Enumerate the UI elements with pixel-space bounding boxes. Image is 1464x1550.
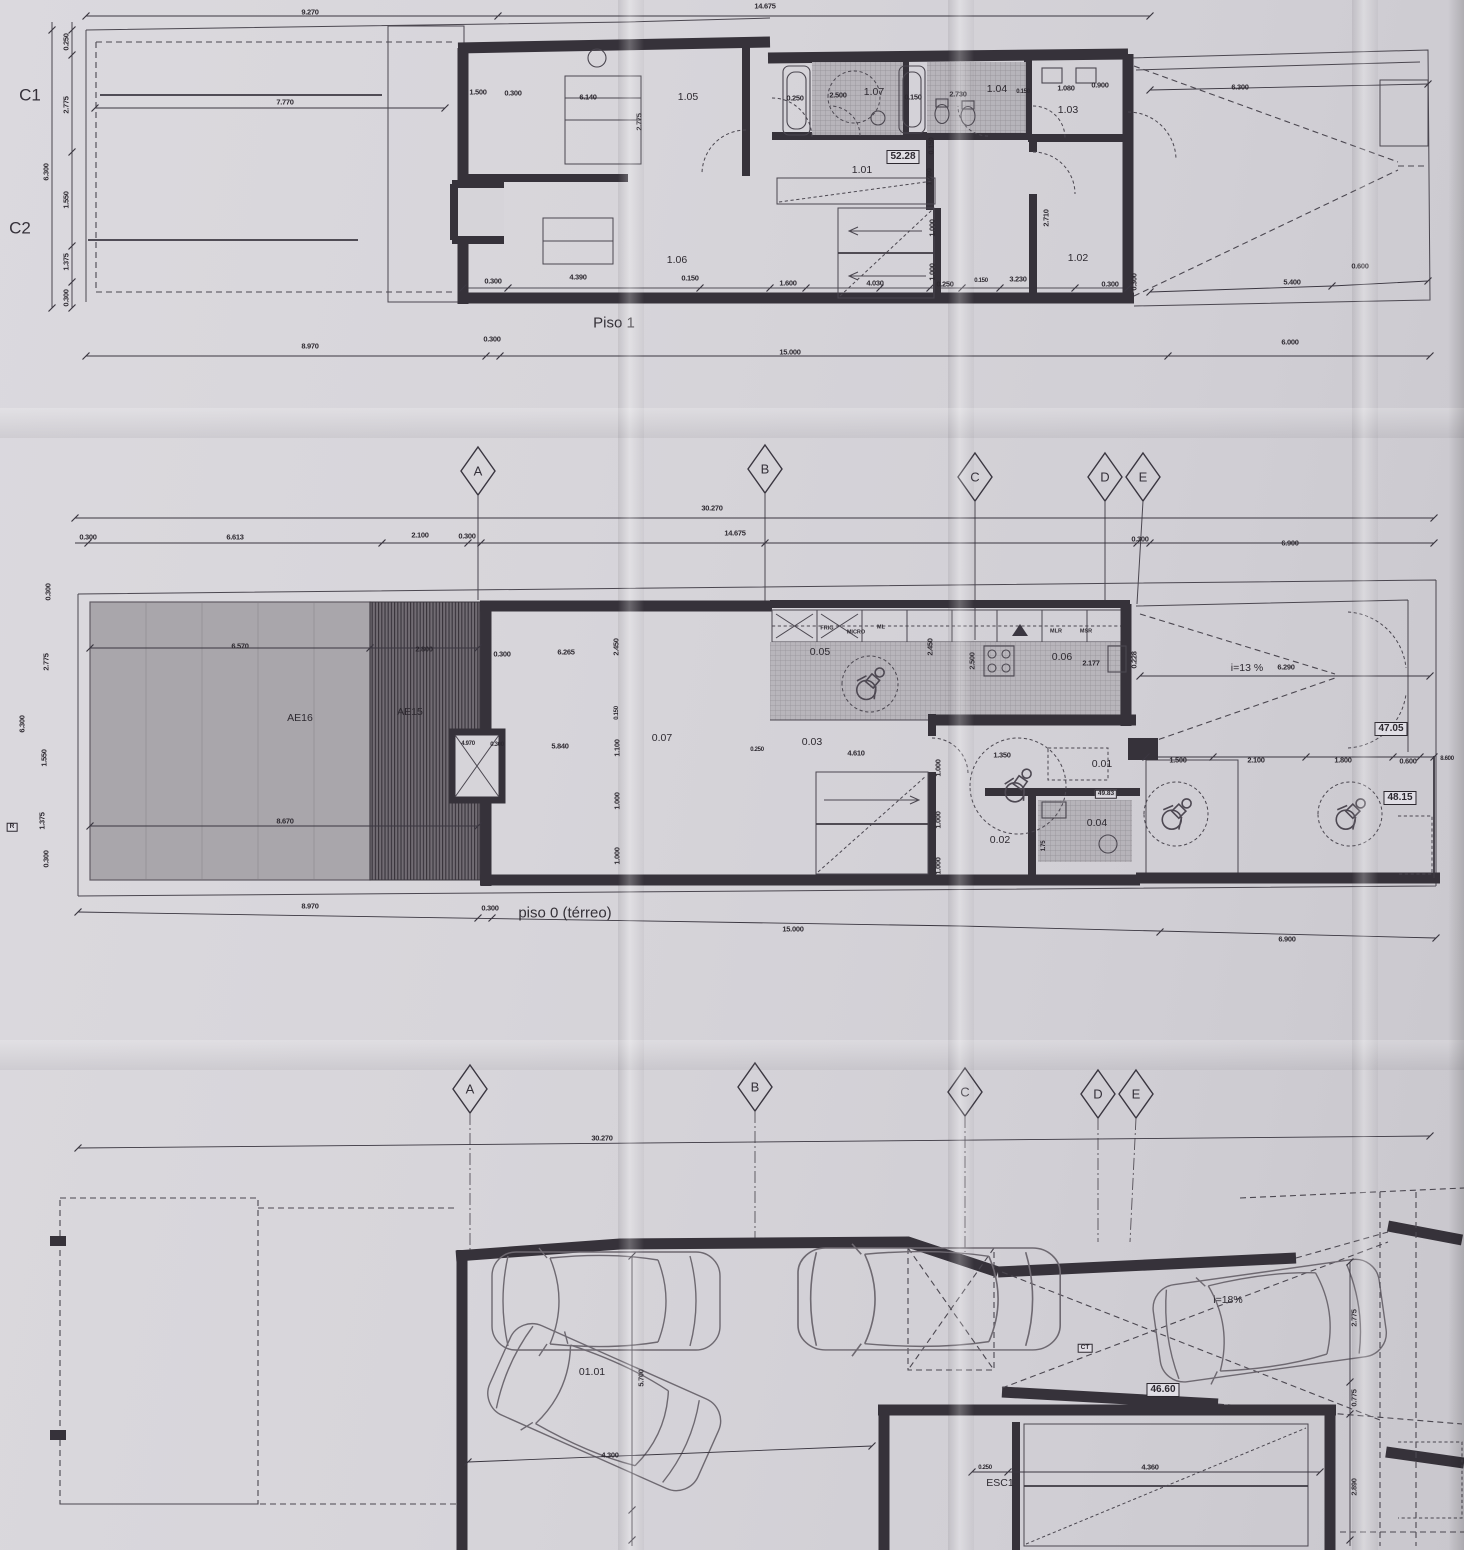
room-label-1.06: 1.06 <box>667 255 687 266</box>
dim-label: 0.300 <box>42 850 50 867</box>
dim-label: 0.900 <box>1091 81 1108 89</box>
dim-label: 6.290 <box>1277 663 1294 671</box>
dim-label: 1.000 <box>928 263 936 280</box>
dim-label: 1.000 <box>934 857 942 874</box>
dim-label: 7.770 <box>276 98 293 106</box>
dim-label: 0.300 <box>62 289 70 306</box>
dim-label: 0.300 <box>44 583 52 600</box>
dim-label: 14.675 <box>754 2 775 10</box>
dim-label: 1.780 <box>925 168 933 185</box>
dim-label: 5.400 <box>1283 278 1300 286</box>
grid-marker-B: B <box>751 1081 760 1094</box>
dim-label: 1.080 <box>1057 84 1074 92</box>
dim-label: 5.840 <box>551 742 568 750</box>
dim-label: 1.000 <box>934 811 942 828</box>
dim-label: 1.550 <box>62 191 70 208</box>
dim-label: 5.700 <box>637 1369 645 1386</box>
blueprint-sheet: 9.27014.675C1C27.7700.2502.7756.3001.550… <box>0 0 1464 1550</box>
room-label-0.02: 0.02 <box>990 835 1010 846</box>
tiny-label: 8.600 <box>1440 756 1454 762</box>
dim-label: 1.000 <box>613 847 621 864</box>
app-label: FRIG <box>820 626 833 632</box>
dim-label: 6.300 <box>18 715 26 732</box>
dim-label: 6.300 <box>42 163 50 180</box>
plan-title-piso1: Piso 1 <box>593 316 635 331</box>
dim-label: 30.270 <box>591 1134 612 1142</box>
room-label-1.01: 1.01 <box>852 165 872 176</box>
room-label-0.07: 0.07 <box>652 733 672 744</box>
room-label-1.05: 1.05 <box>678 92 698 103</box>
dim-label: 0.250 <box>936 280 953 288</box>
dim-label: 4.030 <box>866 279 883 287</box>
room-label-1.02: 1.02 <box>1068 253 1088 264</box>
box-label: 46.60 <box>1146 1383 1179 1397</box>
dim-label: 14.675 <box>724 529 745 537</box>
dim-label: 1.375 <box>62 253 70 270</box>
room-label-AE15: AE15 <box>397 707 423 718</box>
dim-label: 0.300 <box>79 533 96 541</box>
dim-label: 0.300 <box>1130 273 1138 290</box>
dim-label: 0.250 <box>786 94 803 102</box>
dim-label: 0.300 <box>1101 280 1118 288</box>
room-label-1.07: 1.07 <box>864 87 884 98</box>
dim-label: 4.610 <box>847 749 864 757</box>
dim-label: 6.613 <box>226 533 243 541</box>
room-label-AE16: AE16 <box>287 713 313 724</box>
tiny-label: 0.150 <box>614 706 620 720</box>
dim-label: 9.270 <box>301 8 318 16</box>
dim-label: 1.000 <box>934 759 942 776</box>
boxtiny-label: R <box>7 823 18 832</box>
dim-label: 0.228 <box>1130 651 1138 668</box>
section-label: C1 <box>19 87 41 104</box>
dim-label: 0.300 <box>481 904 498 912</box>
dim-label: 15.000 <box>782 925 803 933</box>
tiny-label: 0.150 <box>1016 89 1030 95</box>
app-label: MSR <box>1080 629 1092 635</box>
dim-label: 1.600 <box>779 279 796 287</box>
app-label: MICRO <box>847 630 865 636</box>
grid-marker-B: B <box>761 463 770 476</box>
room-label-1.03: 1.03 <box>1058 105 1078 116</box>
dim-label: 30.270 <box>701 504 722 512</box>
app-label: MLR <box>1050 629 1062 635</box>
dim-label: 2.710 <box>1042 209 1050 226</box>
dim-label: 0.300 <box>458 532 475 540</box>
dim-label: 6.570 <box>231 642 248 650</box>
room-label-01.01: 01.01 <box>579 1367 605 1378</box>
dim-label: 0.250 <box>62 33 70 50</box>
grid-marker-C: C <box>970 471 979 484</box>
grid-marker-C: C <box>960 1086 969 1099</box>
dim-label: 6.140 <box>579 93 596 101</box>
dim-label: 4.360 <box>1141 1463 1158 1471</box>
grid-marker-E: E <box>1132 1088 1141 1101</box>
dim-label: 2.450 <box>926 638 934 655</box>
tiny-label: 0.250 <box>750 747 764 753</box>
dim-label: 0.300 <box>483 335 500 343</box>
dim-label: 4.390 <box>569 273 586 281</box>
grid-marker-D: D <box>1100 471 1109 484</box>
dim-label: 0.150 <box>681 274 698 282</box>
dim-label: 0.600 <box>1399 757 1416 765</box>
dim-label: 15.000 <box>779 348 800 356</box>
dim-label: 1.000 <box>613 792 621 809</box>
dim-label: 1.500 <box>1169 756 1186 764</box>
box-label: 47.05 <box>1374 722 1407 736</box>
boxtiny-label: CT <box>1078 1344 1093 1353</box>
dim-label: 2.775 <box>42 653 50 670</box>
dim-label: 1.375 <box>38 812 46 829</box>
dim-label: 0.150 <box>904 93 921 101</box>
dim-label: 1.550 <box>40 749 48 766</box>
dim-label: 0.600 <box>1351 262 1368 270</box>
dim-label: 2.100 <box>1247 756 1264 764</box>
dim-label: 2.177 <box>1082 659 1099 667</box>
room-label-ESC1: ESC1 <box>986 1478 1013 1489</box>
dim-label: 2.890 <box>1350 1478 1358 1495</box>
box-label: 52.28 <box>886 150 919 164</box>
dim-label: 8.670 <box>276 817 293 825</box>
grid-marker-A: A <box>466 1083 475 1096</box>
dim-label: 4.300 <box>601 1451 618 1459</box>
tiny-label: 1.75 <box>1041 841 1047 851</box>
dim-label: 6.265 <box>557 648 574 656</box>
dim-label: 1.350 <box>993 751 1010 759</box>
dim-label: 0.775 <box>1350 1389 1358 1406</box>
boxtiny-label: 49.83 <box>1095 790 1117 799</box>
tiny-label: 0.300 <box>490 742 504 748</box>
room-label-0.04: 0.04 <box>1087 818 1107 829</box>
dim-label: 1.500 <box>469 88 486 96</box>
dim-label: 2.775 <box>635 113 643 130</box>
dim-label: 2.450 <box>612 638 620 655</box>
room-label-1.04: 1.04 <box>987 84 1007 95</box>
dim-label: 0.300 <box>1131 535 1148 543</box>
dim-label: 1.000 <box>928 219 936 236</box>
room-label-0.03: 0.03 <box>802 737 822 748</box>
dim-label: 3.230 <box>1009 275 1026 283</box>
dim-label: 6.000 <box>1281 338 1298 346</box>
box-label: 48.15 <box>1383 791 1416 805</box>
plan-title-piso0: piso 0 (térreo) <box>518 906 611 921</box>
dim-label: 8.970 <box>301 902 318 910</box>
grid-marker-A: A <box>474 465 483 478</box>
dim-label: 2.730 <box>949 90 966 98</box>
dim-label: 2.775 <box>62 96 70 113</box>
dim-label: 8.970 <box>301 342 318 350</box>
grid-marker-D: D <box>1093 1088 1102 1101</box>
label-layer: 9.27014.675C1C27.7700.2502.7756.3001.550… <box>0 0 1464 1550</box>
dim-label: 0.300 <box>493 650 510 658</box>
tiny-label: 0.150 <box>974 278 988 284</box>
section-label: C2 <box>9 220 31 237</box>
dim-label: 1.800 <box>1334 756 1351 764</box>
room-label-0.01: 0.01 <box>1092 759 1112 770</box>
dim-label: 6.300 <box>1231 83 1248 91</box>
dim-label: 2.500 <box>968 652 976 669</box>
dim-label: 0.150 <box>927 137 935 154</box>
dim-label: 2.775 <box>1350 1309 1358 1326</box>
app-label: ML <box>877 625 885 631</box>
dim-label: 6.900 <box>1278 935 1295 943</box>
dim-label: 0.300 <box>504 89 521 97</box>
room-label-i=13 %: i=13 % <box>1231 663 1263 674</box>
tiny-label: 4.970 <box>461 741 475 747</box>
dim-label: 1.100 <box>613 739 621 756</box>
dim-label: 2.500 <box>829 91 846 99</box>
room-label-0.05: 0.05 <box>810 647 830 658</box>
dim-label: 2.800 <box>415 645 432 653</box>
dim-label: 0.300 <box>484 277 501 285</box>
room-label-0.06: 0.06 <box>1052 652 1072 663</box>
tiny-label: 0.250 <box>978 1465 992 1471</box>
grid-marker-E: E <box>1139 471 1148 484</box>
room-label-i=18%: i=18% <box>1213 1295 1242 1306</box>
dim-label: 6.900 <box>1281 539 1298 547</box>
dim-label: 2.100 <box>411 531 428 539</box>
